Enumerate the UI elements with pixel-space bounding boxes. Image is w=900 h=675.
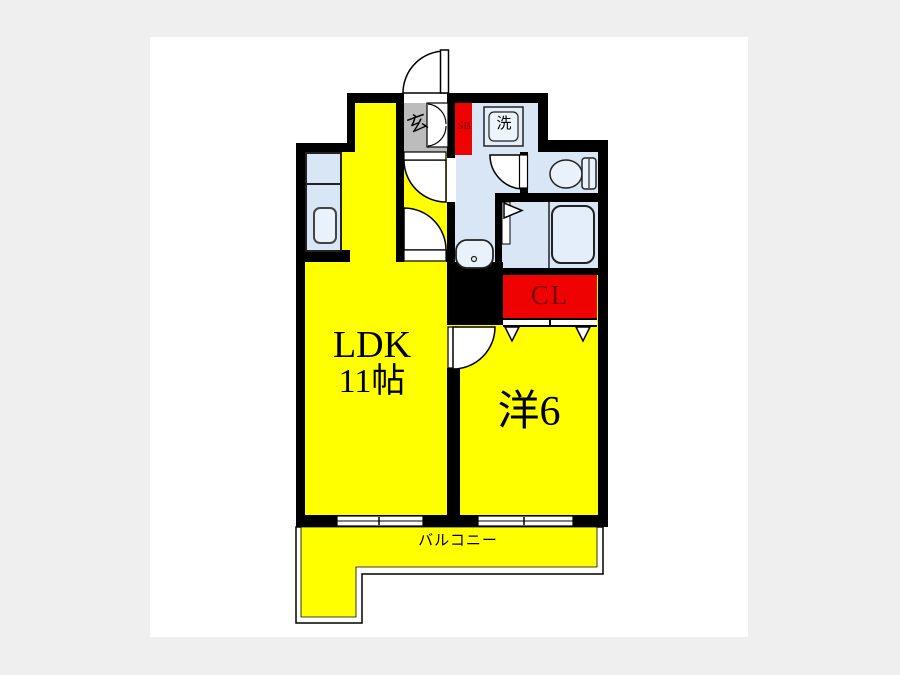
- bathroom-door-marker-icon: [504, 203, 522, 218]
- closet-door-marker-right-icon: [576, 327, 590, 341]
- floorplan-stage: LDK 11帖 洋6 CL SB 玄 洗 バルコニー: [0, 0, 900, 675]
- washbasin-drain-icon: [472, 257, 477, 262]
- western-room-label: 洋6: [460, 390, 598, 434]
- balcony-label: バルコニー: [388, 534, 528, 550]
- western-window-icon: [478, 516, 573, 526]
- entry-door-swing-icon: [403, 51, 445, 93]
- washroom-door-leaf-icon: [520, 155, 528, 188]
- ldk-size-label: 11帖: [300, 364, 444, 400]
- western-door-swing-icon: [453, 327, 495, 369]
- entry-door-leaf-icon: [441, 50, 449, 93]
- closet-door-marker-left-icon: [505, 327, 519, 341]
- closet-label: CL: [503, 281, 597, 309]
- hall-washroom-door-leaf-icon: [404, 152, 446, 160]
- hall-washroom-door-opening: [447, 158, 456, 202]
- laundry-label: 洗: [490, 117, 518, 133]
- hall-ldk-door-swing-icon: [404, 208, 446, 250]
- washbasin-icon: [456, 240, 493, 268]
- toilet-bowl-icon: [550, 160, 582, 188]
- hall-washroom-door-swing-icon: [404, 160, 446, 202]
- ldk-label: LDK: [300, 326, 444, 366]
- bathtub-icon: [552, 206, 594, 263]
- hall-ldk-door-leaf-icon: [404, 250, 446, 261]
- ldk-window-icon: [337, 516, 423, 526]
- plan-overlay: [0, 0, 900, 675]
- shoe-box-label: SB: [453, 121, 475, 133]
